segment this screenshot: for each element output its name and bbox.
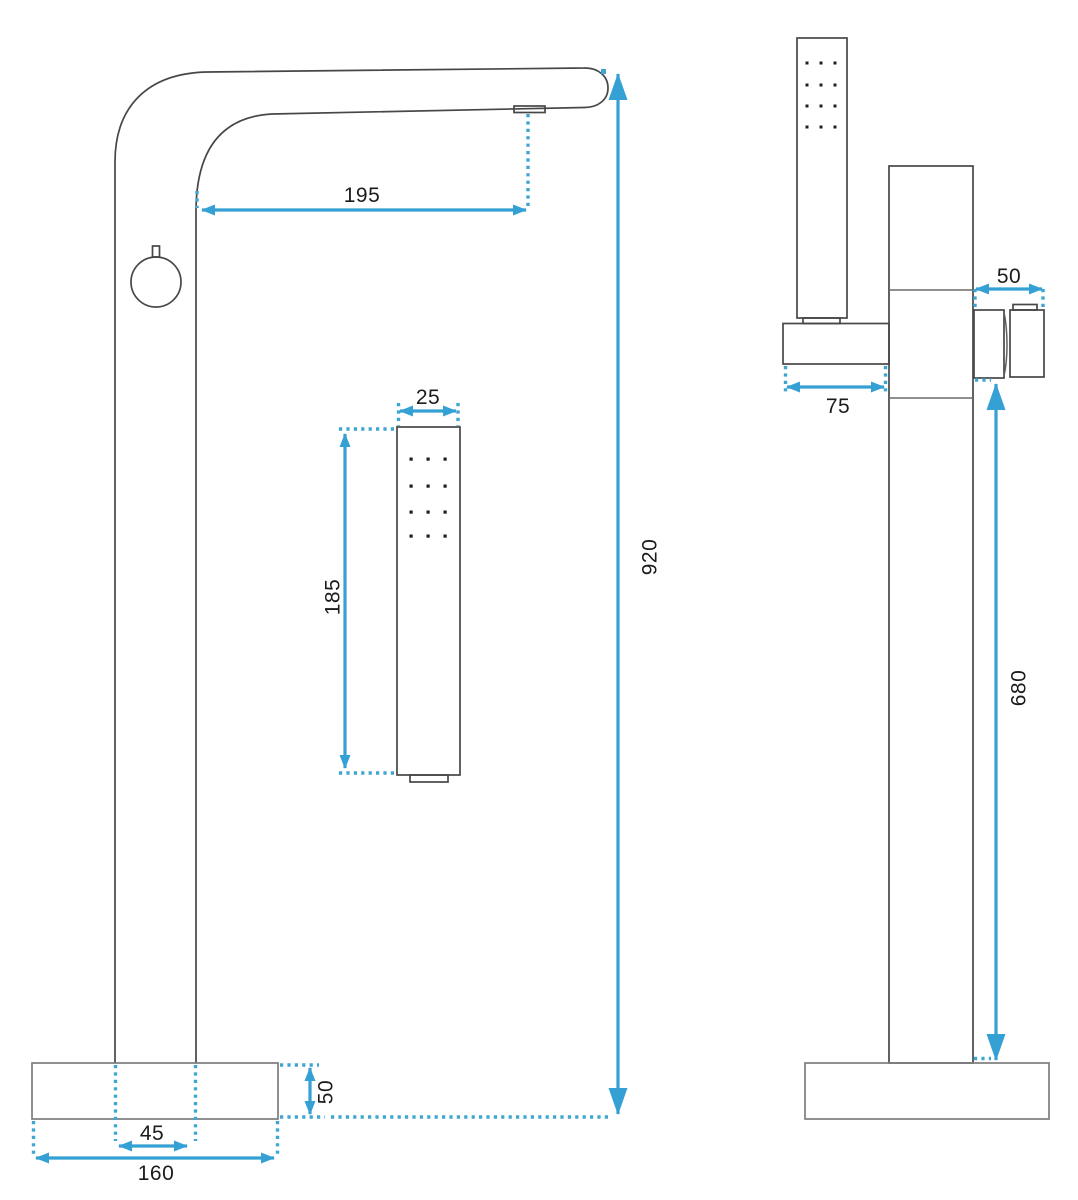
dimension-label: 195 [344, 184, 381, 207]
background [0, 0, 1078, 1200]
dimension-label: 50 [997, 265, 1021, 288]
dimension-label: 920 [638, 539, 661, 576]
dimension-label: 45 [140, 1122, 164, 1145]
dimension-label: 185 [321, 579, 344, 616]
extension-dot [601, 69, 606, 74]
dimension-label: 75 [826, 395, 850, 418]
dimension-label: 680 [1007, 670, 1030, 707]
dimension-label: 25 [416, 386, 440, 409]
dimension-label: 50 [314, 1080, 337, 1104]
technical-drawing-page: 195 920 25 185 50 [0, 0, 1078, 1200]
faucet-dimension-drawing: 195 920 25 185 50 [0, 0, 1078, 1200]
dimension-label: 160 [138, 1162, 175, 1185]
